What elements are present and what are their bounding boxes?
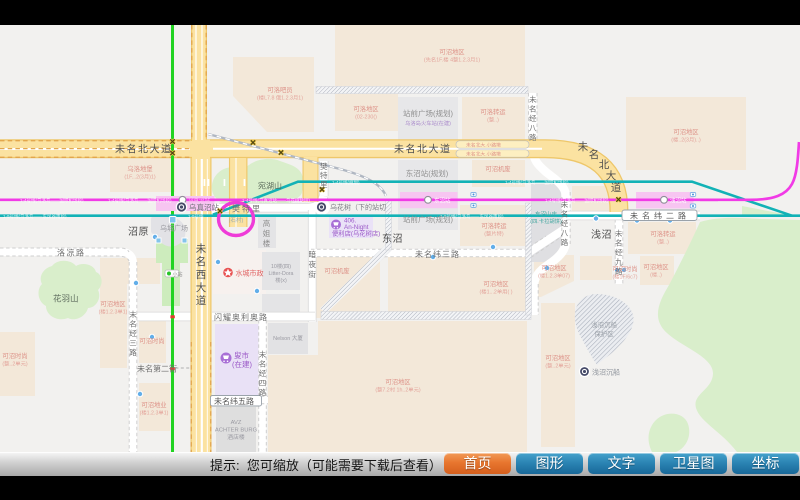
- svg-text:夜: 夜: [308, 259, 316, 269]
- svg-text:经: 经: [259, 368, 267, 378]
- svg-text:(在建): (在建): [232, 359, 252, 369]
- svg-text:樊特里: 樊特里: [232, 204, 262, 214]
- svg-text:四: 四: [259, 379, 267, 388]
- svg-text:(楼1...2单用( ): (楼1...2单用( ): [480, 288, 513, 296]
- svg-text:未: 未: [129, 309, 137, 319]
- svg-text:楼(x): 楼(x): [275, 276, 287, 284]
- svg-text:乌花树（下的站切: 乌花树（下的站切: [330, 203, 386, 212]
- svg-text:未: 未: [578, 141, 589, 153]
- svg-text:未名北大道: 未名北大道: [115, 143, 173, 156]
- svg-text:可沼机废: 可沼机废: [324, 266, 349, 275]
- svg-text:名: 名: [259, 359, 267, 369]
- svg-text:浅沼沉船: 浅沼沉船: [591, 320, 618, 329]
- svg-text:未: 未: [615, 228, 623, 238]
- svg-text:可沼地业: 可沼地业: [141, 400, 166, 409]
- svg-text:东沼站(规划): 东沼站(规划): [406, 168, 449, 178]
- svg-text:路: 路: [259, 387, 267, 397]
- svg-text:洛凉路: 洛凉路: [57, 247, 86, 257]
- svg-text:名: 名: [615, 238, 623, 248]
- svg-text:名: 名: [196, 255, 207, 268]
- svg-text:乌城广场: 乌城广场: [160, 224, 188, 233]
- svg-text:路: 路: [561, 237, 569, 247]
- svg-text:道: 道: [196, 294, 207, 307]
- svg-text:10楼(四): 10楼(四): [271, 262, 291, 270]
- svg-text:可沼地区: 可沼地区: [643, 262, 668, 271]
- svg-text:可沼地区: 可沼地区: [673, 127, 698, 136]
- svg-text:未名北大.小路墩: 未名北大.小路墩: [466, 141, 501, 148]
- svg-text:可沼地区: 可沼地区: [385, 377, 410, 386]
- svg-text:可沼机废: 可沼机废: [485, 164, 510, 173]
- svg-text:未名第二街: 未名第二街: [137, 364, 177, 374]
- svg-text:AVZ: AVZ: [231, 420, 242, 426]
- svg-text:未: 未: [561, 199, 569, 209]
- svg-text:1-9号线(乌洛岛——东风谷南段): 1-9号线(乌洛岛——东风谷南段): [3, 213, 67, 220]
- svg-text:Litter-Dora: Litter-Dora: [268, 271, 293, 277]
- svg-text:乌洛岛火车站(在建): 乌洛岛火车站(在建): [405, 119, 451, 127]
- svg-text:可沼时尚: 可沼时尚: [612, 264, 637, 273]
- svg-text:未名北大.小路墩: 未名北大.小路墩: [466, 150, 501, 157]
- svg-text:闪耀奥利奥路: 闪耀奥利奥路: [214, 312, 268, 322]
- svg-text:沼原: 沼原: [128, 225, 149, 238]
- svg-text:未名纬二路: 未名纬二路: [630, 210, 690, 220]
- svg-text:(1F...2(3月)1): (1F...2(3月)1): [124, 174, 155, 181]
- svg-text:可沼地区: 可沼地区: [541, 263, 566, 272]
- svg-text:ACHTER BURG: ACHTER BURG: [215, 428, 258, 434]
- svg-text:小站: 小站: [173, 271, 183, 278]
- svg-text:(楼L7.8 俄1.2.3月1): (楼L7.8 俄1.2.3月1): [257, 94, 303, 102]
- svg-text:(整7.2村 1h..2单元): (整7.2村 1h..2单元): [375, 386, 421, 394]
- svg-text:樊: 樊: [320, 161, 328, 171]
- svg-text:1-4号线(乌洛岛——国际机场段): 1-4号线(乌洛岛——国际机场段): [20, 197, 84, 204]
- svg-text:可沼地区: 可沼地区: [439, 47, 464, 56]
- svg-text:未: 未: [529, 94, 537, 104]
- svg-text:可洛地区: 可洛地区: [353, 104, 378, 113]
- svg-text:1-9号线: 1-9号线: [188, 213, 204, 220]
- svg-text:高: 高: [263, 218, 271, 228]
- svg-text:经: 经: [529, 113, 537, 123]
- svg-text:可沼时尚: 可沼时尚: [139, 336, 164, 345]
- svg-text:可沼地区: 可沼地区: [545, 353, 570, 362]
- svg-text:花羽山: 花羽山: [53, 294, 79, 304]
- svg-text:可洛转运: 可洛转运: [650, 229, 676, 238]
- svg-text:(楼1.2.3单1): (楼1.2.3单1): [140, 409, 169, 417]
- svg-text:(整..2单元): (整..2单元): [545, 362, 571, 370]
- svg-text:未名纬五路: 未名纬五路: [214, 396, 254, 406]
- svg-text:道: 道: [611, 181, 622, 194]
- svg-text:西: 西: [196, 269, 207, 281]
- svg-text:浅沼沉船: 浅沼沉船: [592, 368, 620, 377]
- svg-text:(楼1F/6c7): (楼1F/6c7): [612, 273, 637, 281]
- svg-text:路: 路: [129, 347, 137, 357]
- svg-text:1-4号线(乌洛岛——国际机场段): 1-4号线(乌洛岛——国际机场段): [505, 179, 569, 186]
- svg-text:可沼地区: 可沼地区: [100, 299, 125, 308]
- svg-text:暗: 暗: [308, 249, 316, 259]
- svg-text:(整片特): (整片特): [484, 230, 504, 238]
- svg-text:(楼..): (楼..): [650, 271, 662, 279]
- svg-text:(石村): (石村): [229, 216, 244, 224]
- svg-text:未: 未: [196, 243, 207, 255]
- svg-text:经: 经: [561, 218, 569, 228]
- svg-text:站前广场(规划): 站前广场(规划): [403, 108, 453, 118]
- svg-text:可沼时尚: 可沼时尚: [2, 351, 27, 360]
- svg-text:可沼地区: 可沼地区: [483, 279, 508, 288]
- svg-text:未: 未: [259, 349, 267, 359]
- svg-text:经: 经: [615, 247, 623, 257]
- svg-text:楼: 楼: [263, 238, 271, 248]
- svg-text:1-4号线(乌洛岛——国际机场段): 1-4号线(乌洛岛——国际机场段): [545, 197, 609, 204]
- svg-text:大: 大: [606, 169, 617, 182]
- svg-text:保护区: 保护区: [594, 329, 614, 338]
- svg-text:未名北大道: 未名北大道: [394, 143, 452, 156]
- svg-text:1-4号线(乌洛岛——国际机场段): 1-4号线(乌洛岛——国际机场段): [108, 197, 172, 204]
- svg-text:(先名1F.楼 4整1.2.3月1): (先名1F.楼 4整1.2.3月1): [424, 56, 480, 64]
- svg-text:八: 八: [529, 124, 537, 133]
- svg-text:名: 名: [529, 104, 537, 114]
- svg-text:(楼1.2.3单1): (楼1.2.3单1): [99, 308, 128, 316]
- svg-text:路: 路: [529, 132, 537, 142]
- svg-text:(整..): (整..): [487, 116, 499, 124]
- svg-text:三: 三: [129, 339, 137, 348]
- svg-text:(楼..2(3月)..): (楼..2(3月)..): [671, 136, 701, 144]
- svg-text:1-4号线(乌真沼站——乌花树站段): 1-4号线(乌真沼站——乌花树站段): [242, 197, 311, 204]
- svg-text:特: 特: [320, 170, 328, 180]
- svg-text:叟市: 叟市: [234, 350, 249, 360]
- svg-text:街: 街: [308, 269, 316, 279]
- svg-text:1-4号线(规划): 1-4号线(规划): [332, 179, 360, 186]
- svg-text:乌洛地堡: 乌洛地堡: [127, 164, 153, 173]
- svg-text:站前广场(规划): 站前广场(规划): [403, 214, 453, 224]
- svg-text:经: 经: [129, 328, 137, 338]
- svg-text:(楼1.2.3单07): (楼1.2.3单07): [538, 272, 570, 280]
- svg-text:Nelson 大厦: Nelson 大厦: [273, 334, 303, 342]
- svg-text:姐: 姐: [263, 228, 271, 238]
- svg-text:名: 名: [561, 209, 569, 219]
- svg-text:乌真沼站: 乌真沼站: [189, 202, 219, 212]
- svg-text:可洛吧员: 可洛吧员: [267, 85, 292, 94]
- svg-text:东沼山庄: 东沼山庄: [535, 210, 558, 218]
- svg-text:未名纬三路: 未名纬三路: [415, 249, 460, 259]
- svg-text:酒店楼: 酒店楼: [227, 433, 245, 441]
- svg-text:便利店(乌花树店): 便利店(乌花树店): [332, 229, 380, 238]
- svg-text:可洛转运: 可洛转运: [481, 221, 507, 230]
- svg-text:浅沼站: 浅沼站: [670, 196, 687, 204]
- svg-text:可洛转运: 可洛转运: [480, 107, 506, 116]
- svg-text:大: 大: [196, 281, 207, 294]
- svg-text:(整..): (整..): [657, 238, 669, 246]
- svg-text:名: 名: [589, 148, 600, 161]
- svg-text:浅沼: 浅沼: [591, 228, 612, 241]
- svg-text:里: 里: [320, 180, 328, 189]
- svg-text:(02-230(): (02-230(): [355, 115, 377, 121]
- svg-text:宛湖山: 宛湖山: [258, 181, 282, 191]
- svg-text:(整..2单元): (整..2单元): [2, 360, 28, 368]
- svg-text:东沼: 东沼: [382, 232, 403, 245]
- svg-text:东沼站: 东沼站: [434, 196, 451, 204]
- svg-text:(四.卡拉胡饼): (四.卡拉胡饼): [530, 217, 562, 225]
- svg-text:水城市政: 水城市政: [236, 268, 264, 277]
- svg-text:八: 八: [561, 229, 569, 238]
- svg-text:名: 名: [129, 319, 137, 329]
